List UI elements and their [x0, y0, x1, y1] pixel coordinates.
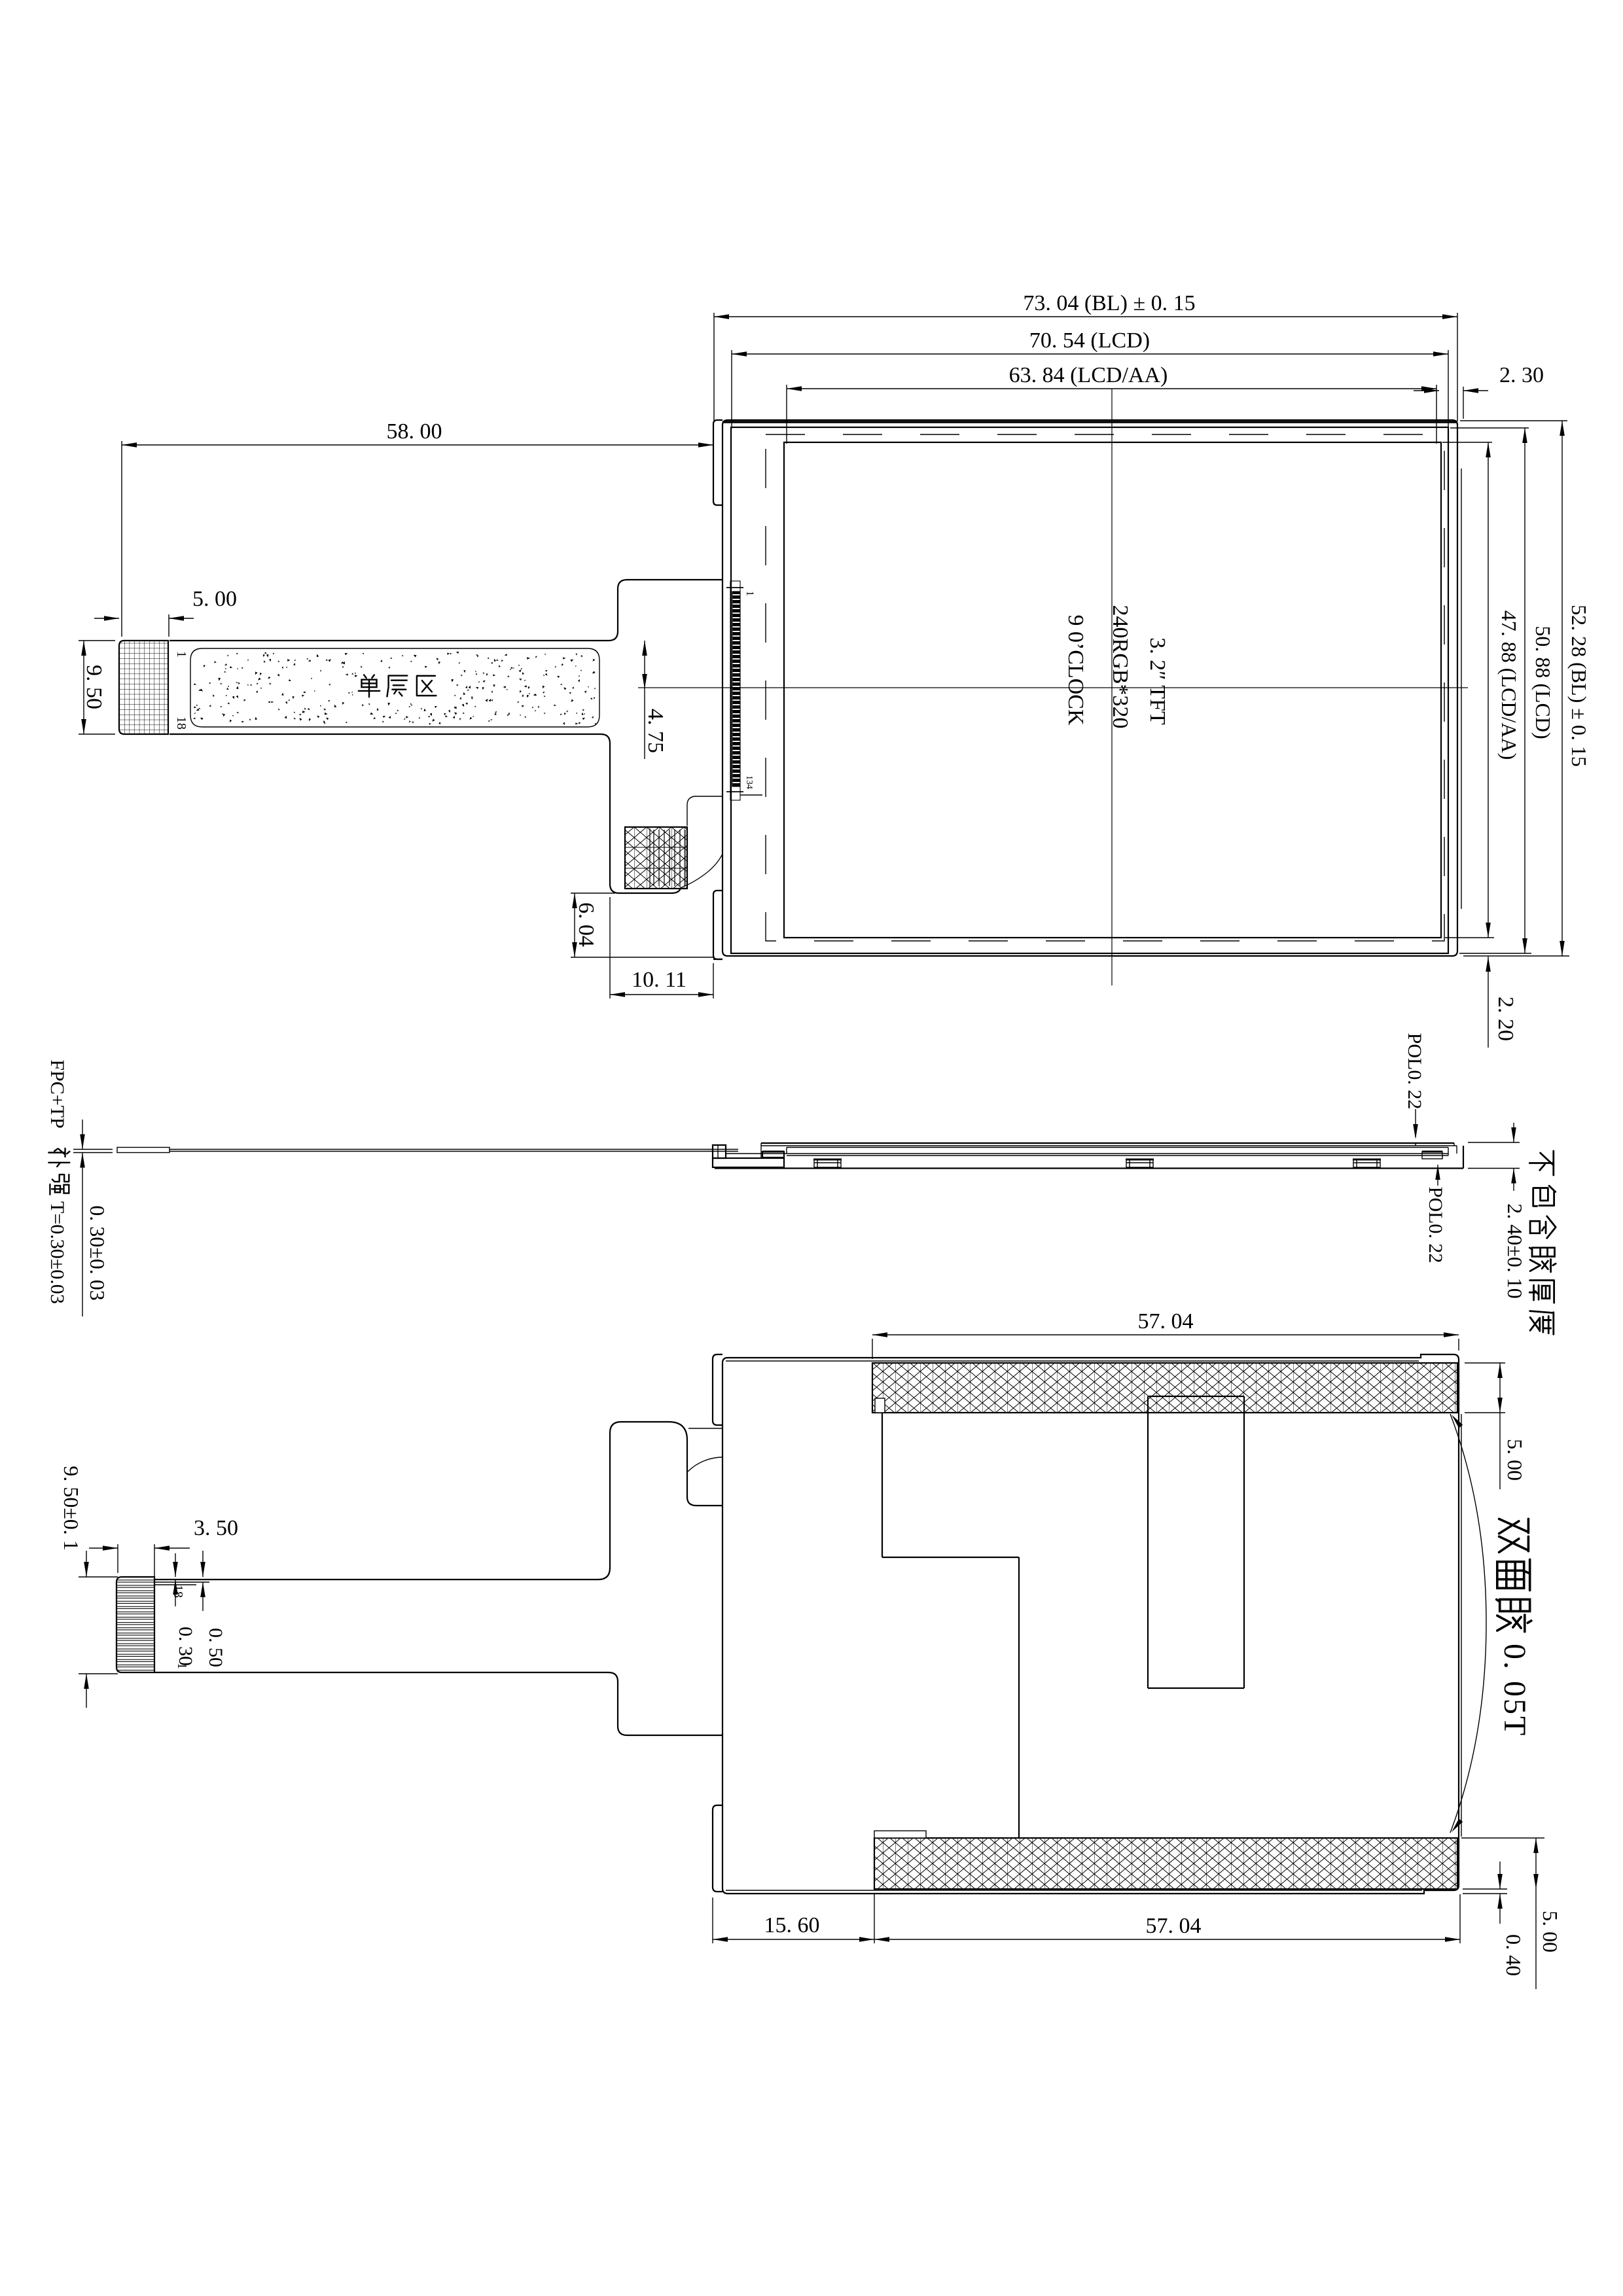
svg-text:15. 60: 15. 60 [764, 1913, 820, 1937]
svg-text:T=0.30±0.03: T=0.30±0.03 [46, 1201, 68, 1304]
svg-text:2. 20: 2. 20 [1493, 997, 1518, 1041]
svg-text:0. 30±0. 03: 0. 30±0. 03 [86, 1205, 109, 1301]
svg-text:57. 04: 57. 04 [1138, 1309, 1194, 1333]
svg-text:5. 00: 5. 00 [1503, 1439, 1527, 1481]
svg-text:3. 2″ TFT: 3. 2″ TFT [1145, 637, 1169, 725]
svg-text:3. 50: 3. 50 [194, 1516, 238, 1540]
svg-text:73. 04 (BL) ± 0. 15: 73. 04 (BL) ± 0. 15 [1023, 291, 1195, 315]
svg-text:58. 00: 58. 00 [387, 419, 442, 444]
svg-text:POL0. 22: POL0. 22 [1404, 1033, 1425, 1110]
svg-text:1: 1 [174, 651, 188, 658]
svg-text:2. 40±0. 10: 2. 40±0. 10 [1503, 1203, 1527, 1299]
svg-text:9 0’CLOCK: 9 0’CLOCK [1063, 614, 1088, 726]
svg-text:6. 04: 6. 04 [574, 902, 598, 947]
svg-text:10. 11: 10. 11 [632, 968, 687, 992]
svg-text:0. 30: 0. 30 [175, 1627, 196, 1666]
svg-text:52. 28 (BL) ± 0. 15: 52. 28 (BL) ± 0. 15 [1567, 605, 1591, 767]
svg-text:50. 88 (LCD): 50. 88 (LCD) [1531, 626, 1555, 739]
svg-text:63. 84 (LCD/AA): 63. 84 (LCD/AA) [1009, 363, 1168, 387]
svg-text:5. 00: 5. 00 [1539, 1911, 1562, 1952]
svg-text:9. 50±0. 1: 9. 50±0. 1 [60, 1466, 83, 1551]
svg-text:240RGB*320: 240RGB*320 [1108, 605, 1132, 729]
svg-text:57. 04: 57. 04 [1146, 1914, 1202, 1938]
svg-text:0. 50: 0. 50 [205, 1628, 226, 1667]
svg-text:18: 18 [174, 716, 188, 730]
svg-text:70. 54 (LCD): 70. 54 (LCD) [1029, 328, 1150, 353]
svg-text:4. 75: 4. 75 [643, 709, 668, 753]
svg-text:18: 18 [171, 1585, 185, 1598]
svg-text:0. 40: 0. 40 [1502, 1934, 1525, 1976]
svg-text:134: 134 [744, 775, 754, 789]
svg-text:POL0. 22: POL0. 22 [1425, 1187, 1446, 1263]
svg-text:2. 30: 2. 30 [1499, 363, 1544, 387]
svg-text:9. 50: 9. 50 [82, 665, 106, 709]
svg-text:47. 88 (LCD/AA): 47. 88 (LCD/AA) [1497, 610, 1521, 760]
svg-text:0. 05T: 0. 05T [1497, 1644, 1532, 1737]
svg-text:FPC+TP: FPC+TP [46, 1059, 68, 1128]
svg-text:1: 1 [744, 591, 755, 596]
svg-text:5. 00: 5. 00 [192, 587, 237, 611]
